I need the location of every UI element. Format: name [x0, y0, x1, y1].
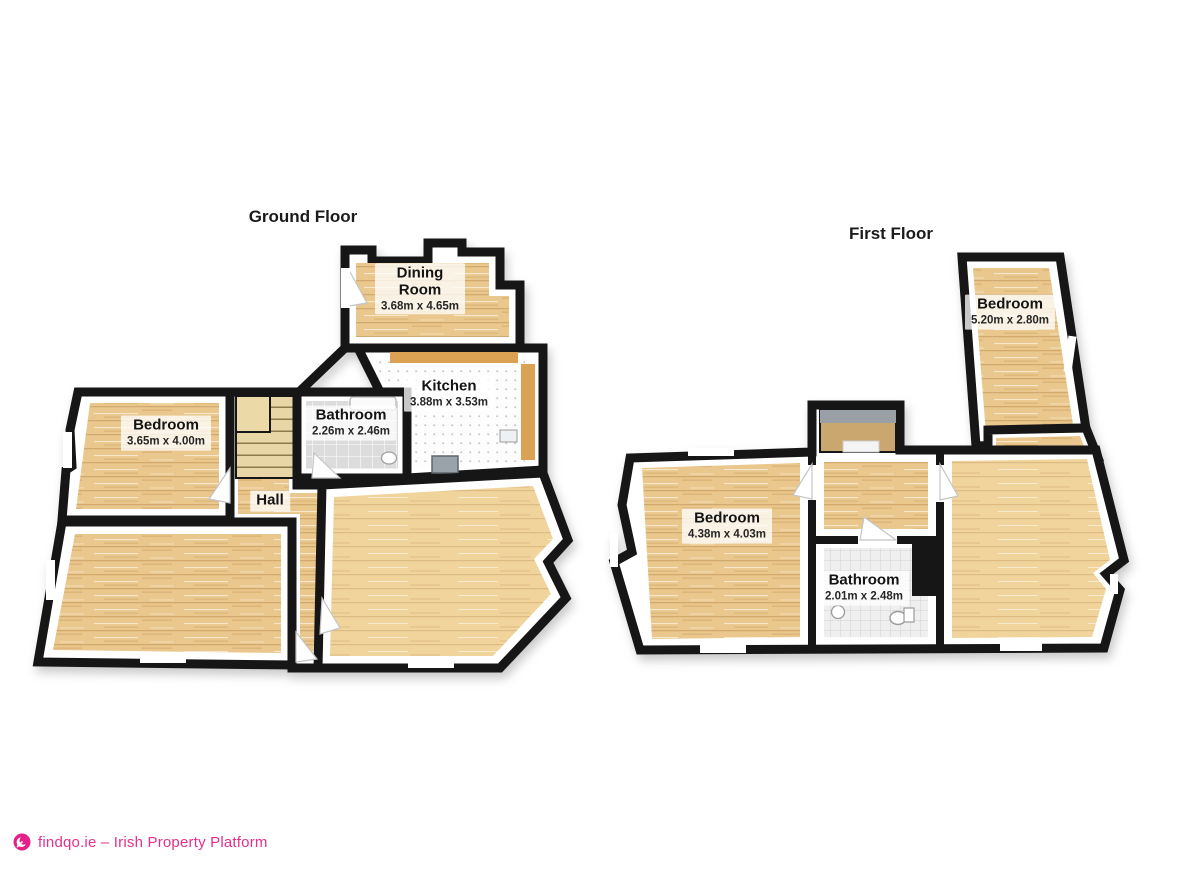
bathroom-shower-block [912, 544, 940, 596]
ground-floor-plan [38, 243, 568, 668]
room-dims: 5.20m x 2.80m [971, 314, 1049, 327]
ground-room-bottom-left [38, 522, 292, 665]
footer-watermark: findqo.ie – Irish Property Platform [13, 833, 268, 851]
room-label-bedroom-left-first: Bedroom 4.38m x 4.03m [682, 509, 772, 544]
kitchen-appliance [432, 456, 458, 473]
ground-bedroom [62, 392, 230, 520]
floorplan-page: Ground Floor First Floor Dining Room 3.6… [0, 0, 1200, 873]
room-label-bathroom-ground: Bathroom 2.26m x 2.46m [306, 406, 396, 441]
room-dims: 2.26m x 2.46m [312, 425, 390, 438]
room-dims: 4.38m x 4.03m [688, 528, 766, 541]
toilet [382, 452, 397, 464]
first-stairwell [820, 410, 896, 452]
kitchen-counter-top [390, 352, 518, 363]
room-name: Bathroom [312, 408, 390, 425]
room-name: Bedroom [127, 418, 205, 435]
kitchen-counter-right [521, 364, 535, 460]
room-label-dining: Dining Room 3.68m x 4.65m [375, 263, 465, 314]
ground-room-bottom-right [318, 473, 568, 668]
toilet-cistern [904, 608, 914, 622]
first-floor-title: First Floor [849, 224, 933, 244]
room-name: Bedroom [688, 511, 766, 528]
room-name: Kitchen [410, 379, 488, 396]
wall-segment [299, 348, 345, 392]
bathroom-sink [832, 606, 845, 619]
room-dims: 3.65m x 4.00m [127, 435, 205, 448]
room-dims: 3.68m x 4.65m [381, 300, 459, 313]
first-bedroom-left-floor [642, 463, 800, 639]
room-label-kitchen: Kitchen 3.88m x 3.53m [404, 377, 494, 412]
first-landing-floor [824, 462, 928, 529]
room-label-bedroom-top-first: Bedroom 5.20m x 2.80m [965, 295, 1055, 330]
footer-text: findqo.ie – Irish Property Platform [38, 834, 268, 851]
room-label-hall: Hall [250, 491, 290, 512]
room-label-bedroom-ground: Bedroom 3.65m x 4.00m [121, 416, 211, 451]
room-dims: 2.01m x 2.48m [825, 590, 903, 603]
room-name: Dining Room [390, 265, 450, 299]
findqo-logo-icon [13, 833, 31, 851]
room-name: Bedroom [971, 297, 1049, 314]
ground-floor-title: Ground Floor [249, 207, 358, 227]
kitchen-sink [500, 430, 517, 442]
room-dims: 3.88m x 3.53m [410, 396, 488, 409]
room-name: Hall [256, 493, 284, 510]
first-room-right-floor [952, 459, 1110, 638]
room-label-bathroom-first: Bathroom 2.01m x 2.48m [819, 571, 909, 606]
room-name: Bathroom [825, 573, 903, 590]
